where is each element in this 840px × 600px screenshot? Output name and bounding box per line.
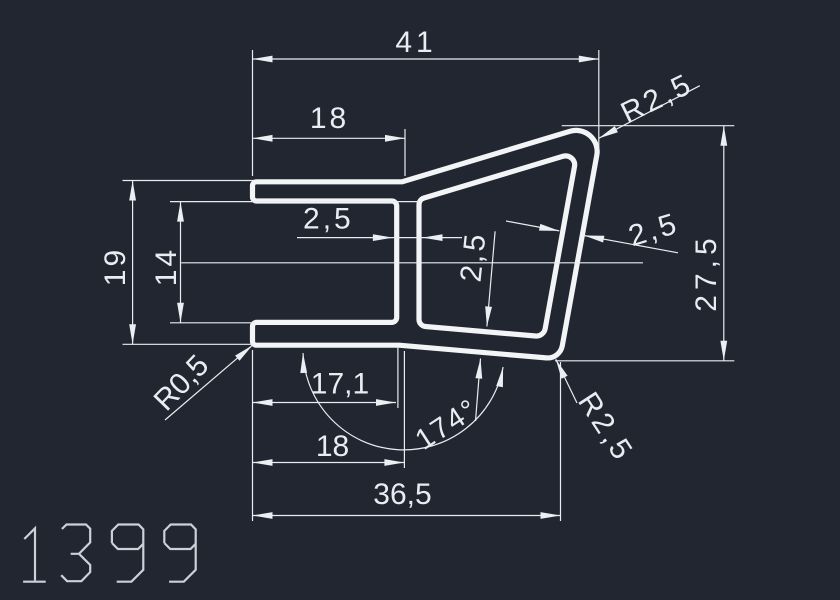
svg-text:41: 41: [395, 26, 436, 59]
svg-text:17,1: 17,1: [311, 368, 369, 401]
svg-text:2,5: 2,5: [454, 230, 492, 284]
svg-text:18: 18: [310, 102, 349, 135]
svg-text:2,5: 2,5: [303, 203, 354, 236]
svg-text:36,5: 36,5: [373, 478, 431, 511]
svg-text:19: 19: [99, 247, 132, 286]
svg-text:18: 18: [316, 430, 349, 463]
svg-text:27,5: 27,5: [690, 233, 723, 311]
svg-text:14: 14: [150, 247, 183, 286]
